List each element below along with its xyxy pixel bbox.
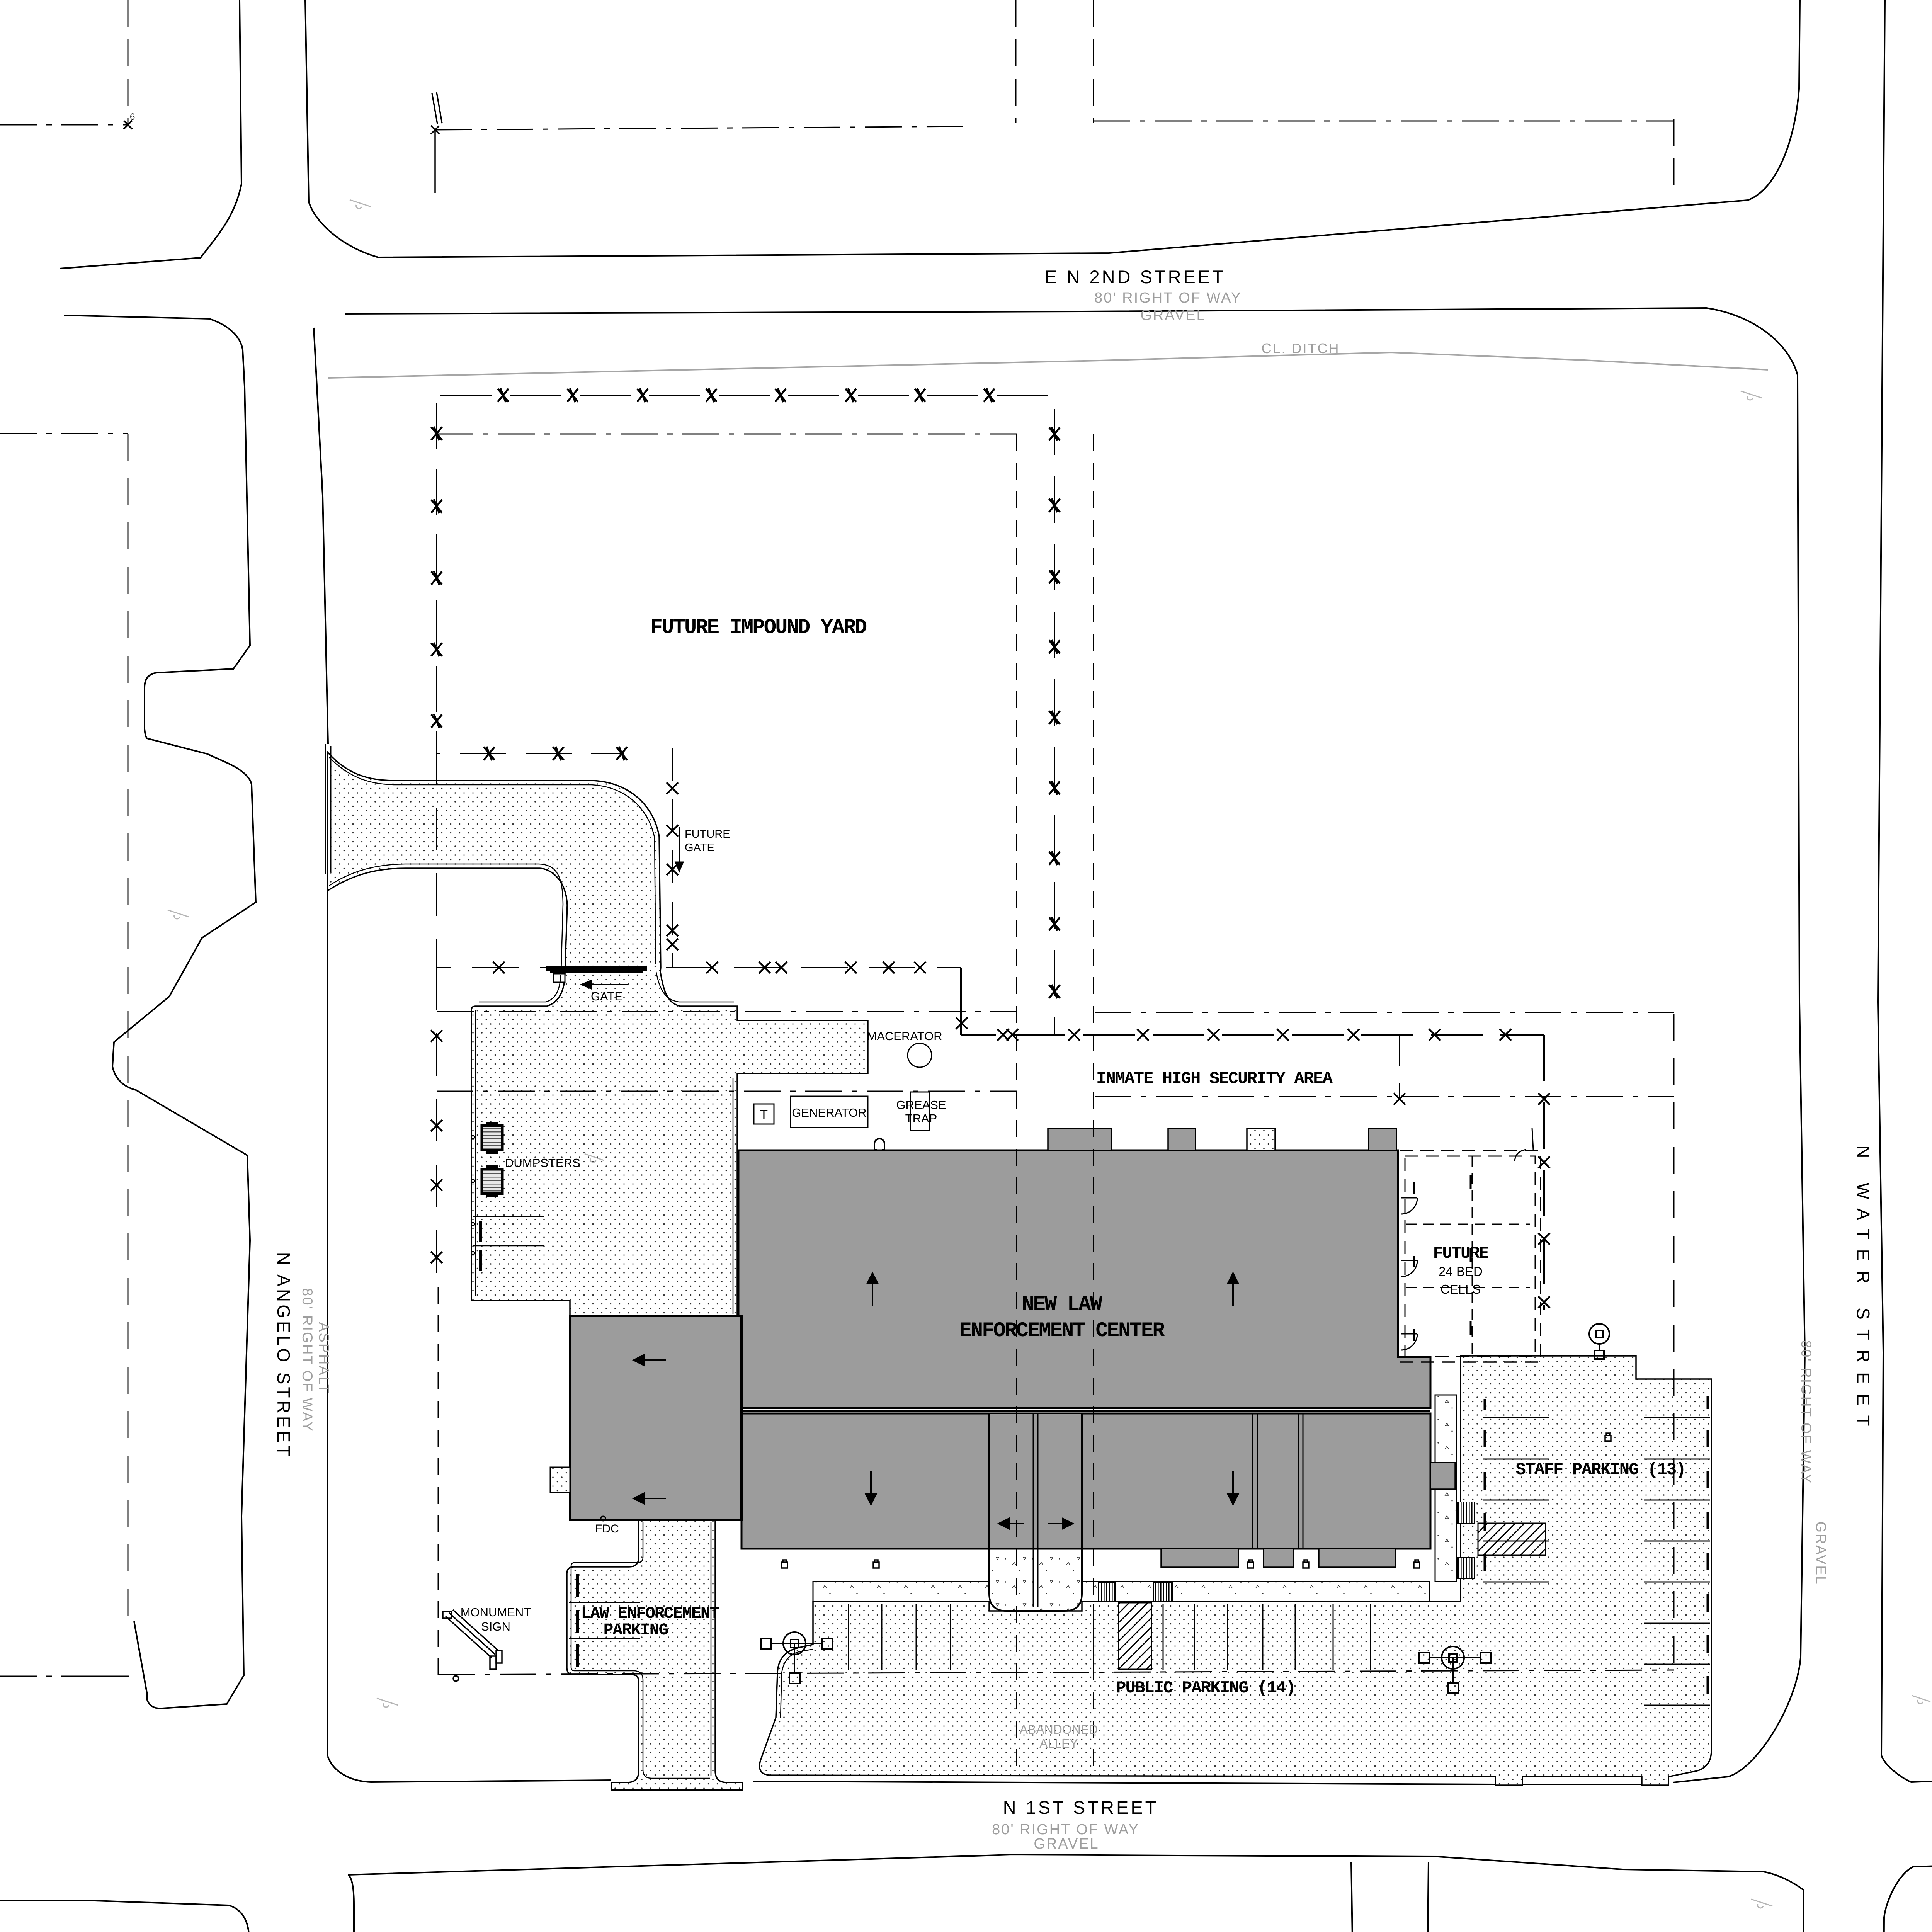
svg-text:LAW ENFORCEMENT: LAW ENFORCEMENT [581,1604,719,1623]
svg-text:6: 6 [130,112,135,122]
svg-text:FUTURE IMPOUND YARD: FUTURE IMPOUND YARD [650,616,867,639]
svg-text:CL. DITCH: CL. DITCH [1261,340,1340,356]
svg-text:FDC: FDC [595,1522,619,1535]
svg-text:TRAP: TRAP [905,1112,937,1125]
svg-text:GRAVEL: GRAVEL [1140,307,1206,323]
svg-text:ASPHALT: ASPHALT [316,1322,332,1395]
svg-text:N 1ST STREET: N 1ST STREET [1003,1797,1159,1818]
svg-text:ABANDONED: ABANDONED [1020,1723,1098,1736]
svg-text:FUTURE: FUTURE [1433,1244,1489,1263]
svg-text:E N 2ND STREET: E N 2ND STREET [1045,267,1226,287]
svg-text:GRAVEL: GRAVEL [1813,1521,1829,1585]
svg-text:T: T [760,1107,768,1121]
svg-text:SIGN: SIGN [481,1620,510,1633]
svg-text:PUBLIC PARKING (14): PUBLIC PARKING (14) [1116,1679,1295,1698]
svg-text:DUMPSTERS: DUMPSTERS [505,1156,580,1170]
svg-text:STAFF PARKING (13): STAFF PARKING (13) [1515,1460,1685,1480]
svg-text:MONUMENT: MONUMENT [461,1605,531,1619]
svg-text:N WATER STREET: N WATER STREET [1853,1145,1873,1435]
svg-text:FUTURE: FUTURE [685,828,730,840]
svg-text:MACERATOR: MACERATOR [867,1029,942,1043]
svg-text:GATE: GATE [591,990,622,1003]
svg-text:PARKING: PARKING [604,1621,668,1639]
svg-text:GENERATOR: GENERATOR [792,1106,867,1119]
svg-text:80' RIGHT OF WAY: 80' RIGHT OF WAY [992,1821,1139,1838]
svg-text:24 BED: 24 BED [1439,1264,1483,1279]
svg-text:N ANGELO STREET: N ANGELO STREET [274,1252,294,1459]
svg-text:ENFORCEMENT CENTER: ENFORCEMENT CENTER [959,1319,1165,1343]
svg-text:GATE: GATE [685,842,714,854]
svg-text:GRAVEL: GRAVEL [1034,1836,1099,1852]
svg-text:CELLS: CELLS [1440,1282,1481,1296]
svg-text:INMATE HIGH SECURITY AREA: INMATE HIGH SECURITY AREA [1096,1069,1333,1088]
svg-text:NEW LAW: NEW LAW [1022,1293,1102,1316]
svg-text:ALLEY: ALLEY [1039,1736,1078,1750]
svg-text:80' RIGHT OF WAY: 80' RIGHT OF WAY [1798,1340,1814,1484]
svg-text:80' RIGHT OF WAY: 80' RIGHT OF WAY [1094,290,1242,306]
svg-text:GREASE: GREASE [896,1098,946,1112]
svg-text:80' RIGHT OF WAY: 80' RIGHT OF WAY [299,1288,315,1432]
